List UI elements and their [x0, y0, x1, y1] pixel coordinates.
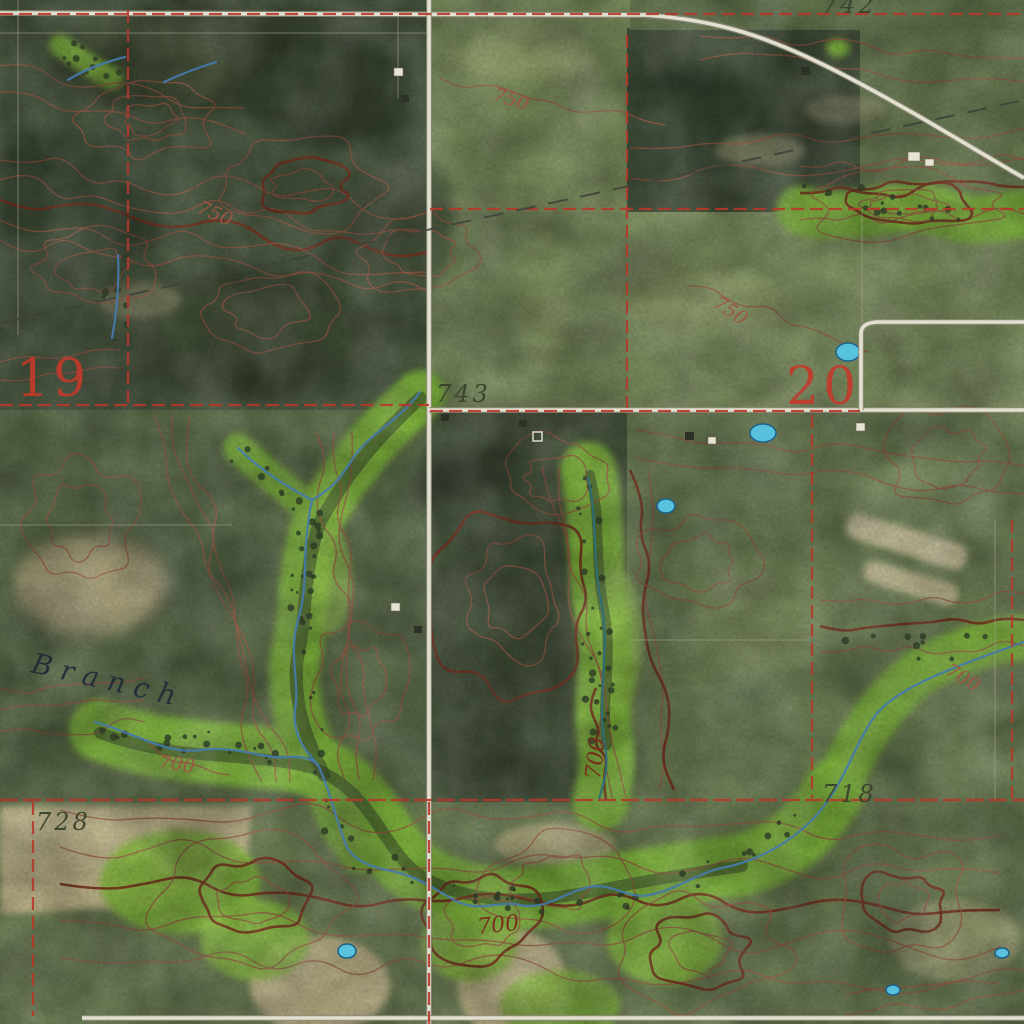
section-number-20: 20: [786, 357, 860, 417]
tree-clump: [606, 628, 613, 635]
pond: [750, 424, 776, 442]
tree-clump: [401, 867, 405, 871]
tree-clump: [510, 896, 515, 901]
tree-clump: [309, 626, 312, 629]
tree-clump: [320, 728, 323, 731]
tree-clump: [930, 216, 935, 221]
tree-clump: [582, 539, 586, 543]
building: [856, 423, 865, 431]
tree-clump: [784, 832, 790, 838]
tree-clump: [607, 724, 611, 728]
tree-clump: [473, 899, 478, 904]
tree-clump: [102, 289, 109, 296]
tree-clump: [62, 56, 66, 60]
tree-clump: [301, 650, 306, 655]
tree-clump: [207, 731, 210, 734]
tree-clump: [193, 735, 197, 739]
pond: [657, 499, 675, 513]
tree-clump: [316, 532, 323, 539]
tree-clump: [881, 201, 884, 204]
building: [414, 626, 422, 633]
tree-clump: [321, 827, 329, 835]
tree-clump: [897, 211, 902, 216]
tree-clump: [306, 613, 312, 619]
tree-clump: [348, 835, 354, 841]
tree-clump: [327, 805, 330, 808]
tree-clump: [453, 884, 456, 887]
tree-clump: [597, 651, 601, 655]
tree-clump: [871, 633, 876, 638]
tree-clump: [300, 620, 306, 626]
tree-clump: [287, 604, 294, 611]
tree-clump: [576, 899, 583, 906]
tree-clump: [964, 633, 970, 639]
building: [908, 152, 920, 161]
tree-clump: [80, 45, 85, 50]
spot-elevation-728: 728: [36, 808, 91, 836]
tree-clump: [582, 696, 589, 703]
tree-clump: [312, 691, 316, 695]
tree-clump: [99, 727, 106, 734]
tree-clump: [67, 61, 72, 66]
tree-clump: [594, 699, 600, 705]
building: [685, 432, 694, 440]
contour-label-700: 700: [581, 736, 611, 781]
tree-clump: [71, 40, 77, 46]
tree-clump: [956, 218, 960, 222]
tree-clump: [589, 677, 595, 683]
tree-clump: [115, 735, 119, 739]
tree-clump: [312, 574, 316, 578]
tree-clump: [301, 575, 304, 578]
tree-clump: [245, 446, 251, 452]
tree-clump: [890, 194, 896, 200]
tree-clump: [858, 184, 865, 191]
tree-clump: [258, 473, 265, 480]
tree-clump: [623, 903, 630, 910]
tree-clump: [608, 687, 614, 693]
tree-clump: [793, 814, 796, 817]
tree-clump: [599, 575, 606, 582]
tree-clump: [581, 568, 588, 575]
tree-clump: [510, 886, 516, 892]
tree-clump: [696, 884, 700, 888]
tree-clump: [920, 640, 924, 644]
tree-clump: [589, 657, 593, 661]
tree-clump: [474, 893, 479, 898]
spot-elevation-742: 742: [822, 0, 877, 19]
tree-clump: [296, 531, 301, 536]
tree-clump: [73, 55, 80, 62]
tree-clump: [802, 184, 806, 188]
tree-clump: [576, 506, 580, 510]
tree-clump: [606, 711, 610, 715]
spot-elevation-743: 743: [436, 380, 491, 408]
topo-map-svg: 19 20 743 742 728 718 750 750 750 700 70…: [0, 0, 1024, 1024]
tree-clump: [606, 666, 612, 672]
tree-clump: [296, 591, 299, 594]
tree-clump: [114, 339, 117, 342]
tree-clump: [917, 657, 921, 661]
building: [925, 159, 934, 166]
building: [391, 603, 400, 611]
tree-clump: [312, 554, 316, 558]
tree-clump: [742, 851, 747, 856]
tree-clump: [496, 891, 501, 896]
tree-clump: [235, 742, 242, 749]
tree-clump: [777, 820, 782, 825]
pond: [995, 948, 1009, 958]
tree-clump: [586, 632, 590, 636]
tree-clump: [534, 898, 541, 905]
tree-clump: [679, 870, 686, 877]
tree-clump: [610, 683, 614, 687]
tree-clump: [913, 642, 920, 649]
tree-clump: [589, 669, 596, 676]
building: [519, 420, 527, 427]
tree-clump: [82, 73, 85, 76]
section-number-19: 19: [16, 349, 90, 409]
tree-clump: [292, 507, 295, 510]
tree-clump: [313, 770, 317, 774]
tree-clump: [600, 627, 603, 630]
tree-clump: [581, 642, 584, 645]
tree-clump: [290, 589, 293, 592]
tree-clump: [746, 848, 753, 855]
tree-clump: [93, 57, 98, 62]
tree-clump: [707, 860, 710, 863]
tree-clump: [591, 607, 594, 610]
tree-clump: [595, 517, 602, 524]
tree-clump: [318, 750, 325, 757]
tree-clump: [392, 854, 399, 861]
pond: [338, 944, 356, 958]
tree-clump: [230, 460, 233, 463]
tree-clump: [352, 867, 356, 871]
tree-clump: [310, 542, 317, 549]
tree-clump: [579, 513, 582, 516]
tree-clump: [299, 546, 304, 551]
tree-clump: [308, 588, 314, 594]
tree-clump: [918, 204, 923, 209]
topo-map-canvas: 19 20 743 742 728 718 750 750 750 700 70…: [0, 0, 1024, 1024]
tree-clump: [258, 743, 265, 750]
pond: [886, 985, 900, 995]
tree-clump: [316, 510, 323, 517]
building: [801, 67, 810, 75]
tree-clump: [920, 633, 927, 640]
tree-clump: [116, 69, 122, 75]
tree-clump: [309, 696, 313, 700]
tree-clump: [506, 897, 509, 900]
tree-clump: [267, 760, 272, 765]
tree-clump: [842, 637, 850, 645]
tree-clump: [164, 734, 171, 741]
tree-clump: [904, 633, 911, 640]
building: [394, 68, 403, 76]
tree-clump: [228, 751, 231, 754]
building: [401, 95, 409, 102]
tree-clump: [296, 497, 303, 504]
tree-clump: [598, 684, 601, 687]
tree-clump: [203, 741, 210, 748]
aerial-texture: [0, 0, 1024, 1024]
tree-clump: [182, 734, 187, 739]
tree-clump: [367, 869, 373, 875]
tree-clump: [590, 729, 597, 736]
tree-clump: [103, 73, 109, 79]
tree-clump: [583, 476, 587, 480]
tree-clump: [612, 725, 618, 731]
tree-clump: [291, 574, 294, 577]
tree-clump: [826, 189, 833, 196]
contour-label-700: 700: [476, 911, 520, 940]
tree-clump: [410, 881, 413, 884]
building: [441, 414, 449, 421]
tree-clump: [764, 832, 771, 839]
tree-clump: [505, 905, 511, 911]
building: [708, 437, 716, 444]
tree-clump: [253, 747, 256, 750]
tree-clump: [280, 492, 284, 496]
spot-elevation-718: 718: [822, 780, 877, 808]
tree-clump: [982, 634, 987, 639]
tree-clump: [539, 909, 545, 915]
